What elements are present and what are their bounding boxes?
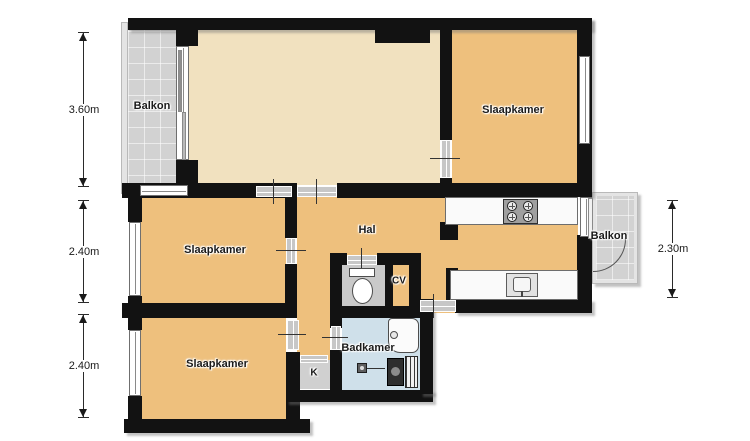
door-living-hall [297,186,337,197]
door-living-hall-tick [316,179,317,204]
wall-chimney [375,30,430,43]
room-label-hall: Hal [358,224,375,236]
door-closet [300,355,328,363]
window-bedroom-top-right [579,56,590,144]
washer-valve-icon [357,363,367,373]
washer-hose-line [367,368,385,369]
door-living-bedroom-left [256,186,292,197]
front-door [420,300,456,312]
window-bedroom-bottom-left [129,330,141,396]
balcony-railing-left [121,22,128,194]
living-room-floor [188,30,440,185]
door-bedroom-middle-tick [276,250,306,251]
room-label-closet: K [310,368,317,379]
door-bedroom-bottom-tick [278,334,306,335]
wall-bottom [124,419,310,433]
sink-icon [506,273,538,297]
wall-balcony-corner-top [176,18,198,46]
door-bathroom [331,326,341,350]
wall-bathroom-left-b [330,350,342,392]
radiator-icon [405,356,418,388]
washing-machine-icon [387,358,404,386]
door-bedroom-top-right-tick [430,158,460,159]
wall-kitchen-top [447,183,592,197]
door-bathroom-tick [322,337,348,338]
toilet-bowl-icon [352,278,373,304]
window-bedroom-middle-left [129,222,141,296]
sliding-door-panel-2 [182,112,186,160]
room-label-cv: CV [392,276,406,287]
floor-plan-canvas: Balkon Slaapkamer Slaapkamer Slaapkamer … [0,0,750,441]
room-label-bedroom-middle-left: Slaapkamer [184,244,246,256]
room-label-bedroom-bottom-left: Slaapkamer [186,358,248,370]
door-toilet [347,255,377,265]
dimension-label: 2.30m [656,243,691,255]
room-label-balcony-top-left: Balkon [134,100,171,112]
dimension-label: 3.60m [67,104,102,116]
room-label-bedroom-top-right: Slaapkamer [482,104,544,116]
front-door-tick [433,294,434,318]
door-living-bedroom-left-tick [273,179,274,204]
kitchen-floor [440,224,578,274]
door-bedroom-top-right [441,140,451,178]
wall-between-bedrooms [122,303,297,318]
wall-kitchen-bottom [455,299,592,313]
door-bedroom-bottom [287,320,299,350]
room-label-bathroom: Badkamer [341,342,394,354]
room-label-balcony-right: Balkon [591,230,628,242]
bathtub-faucet-icon [390,331,398,339]
wall-bathroom-right [420,299,433,394]
dimension-label: 2.40m [67,246,102,258]
wall-left-middle-a [128,196,142,222]
toilet-icon [349,268,375,277]
wall-closet-bathroom-bottom [286,390,433,402]
wall-mid-right [337,183,447,198]
wall-right-kitchen [577,235,592,313]
wall-bathroom-top [330,306,421,318]
door-bedroom-middle [286,238,296,264]
wall-divider-bedroom-hall-a [285,196,297,238]
sliding-door-panel-1 [178,50,182,112]
stove-icon [503,199,538,224]
window-bedroom-balcony [140,185,188,196]
wall-left-bottom-a [128,316,142,330]
wall-divider-living-bedroom-a [440,18,452,140]
dimension-label: 2.40m [67,360,102,372]
